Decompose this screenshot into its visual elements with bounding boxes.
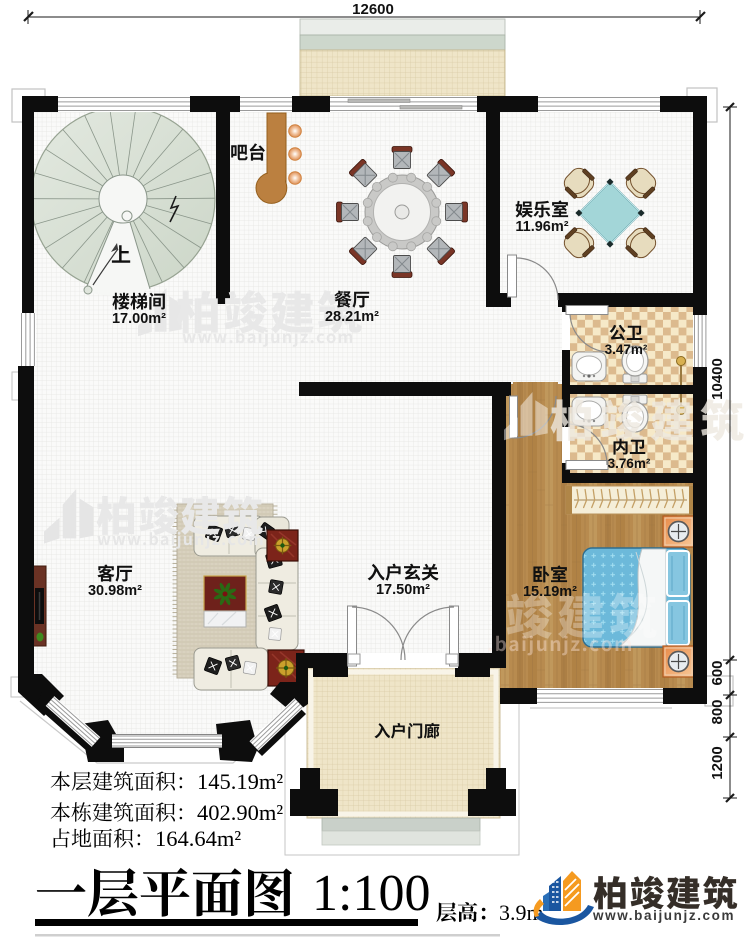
svg-text:800: 800 [709,699,726,724]
svg-text:17.00m²: 17.00m² [112,311,166,327]
svg-text:145.19m²: 145.19m² [197,769,283,794]
svg-text:1200: 1200 [709,746,726,779]
svg-text:15.19m²: 15.19m² [523,584,577,600]
svg-text:600: 600 [709,660,726,685]
svg-text:3.47m²: 3.47m² [605,342,648,357]
svg-text:3.76m²: 3.76m² [608,456,651,471]
svg-text:12600: 12600 [352,1,394,18]
svg-text:www.baijunjz.com: www.baijunjz.com [592,908,735,923]
svg-text:30.98m²: 30.98m² [88,583,142,599]
svg-text:28.21m²: 28.21m² [325,309,379,325]
svg-text:17.50m²: 17.50m² [376,582,430,598]
svg-text:11.96m²: 11.96m² [515,219,568,235]
svg-text:10400: 10400 [709,358,726,400]
svg-text:164.64m²: 164.64m² [155,826,241,851]
svg-text:402.90m²: 402.90m² [197,800,283,825]
svg-text:1:100: 1:100 [312,865,430,922]
